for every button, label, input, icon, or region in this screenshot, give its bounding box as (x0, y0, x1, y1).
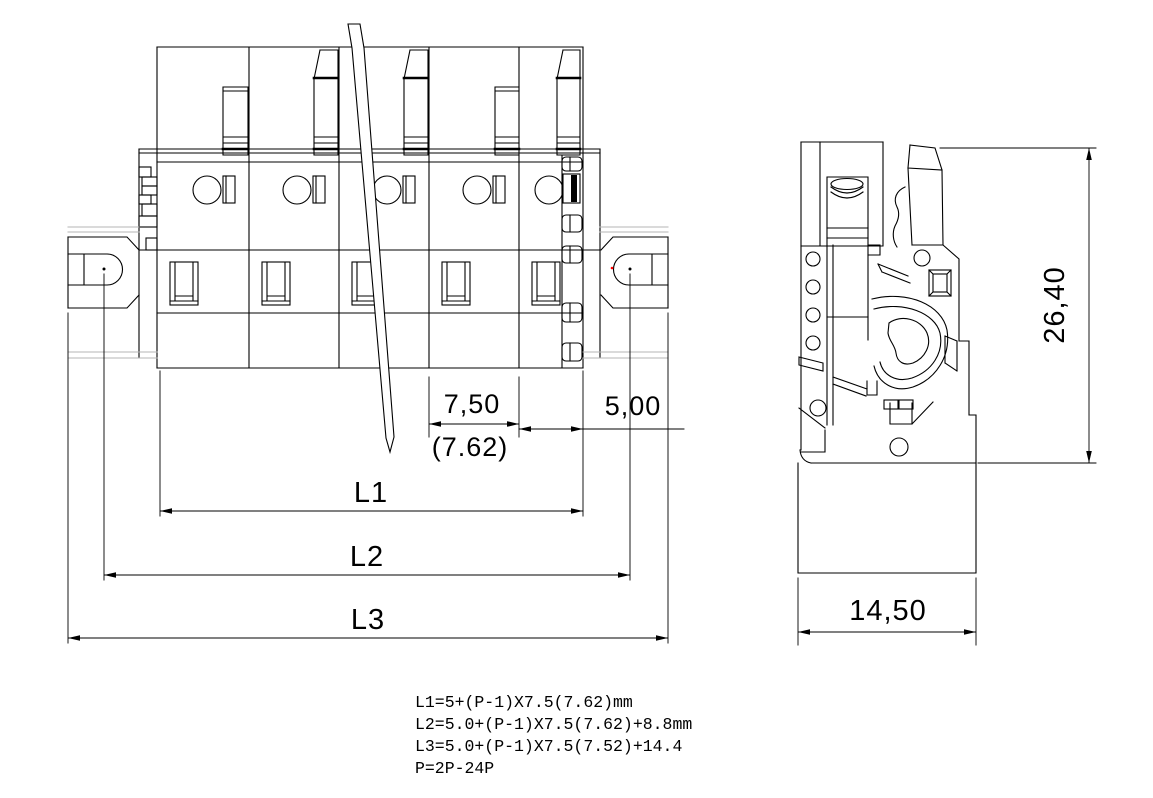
side-outline (798, 142, 976, 573)
mounting-flange-left (68, 227, 157, 358)
latch-pole-5 (557, 50, 580, 155)
dim-side-width-label: 14,50 (849, 595, 927, 627)
note-line-1: L1=5+(P-1)X7.5(7.62)mm (415, 693, 633, 712)
dim-pitch-alt-label: (7.62) (432, 432, 509, 462)
side-features (799, 250, 957, 456)
drawing-canvas: 7,50 (7.62) 5,00 L1 L2 L3 (0, 0, 1153, 798)
latch-pole-1 (223, 87, 248, 155)
dim-l1-label: L1 (354, 477, 388, 509)
latch-pole-4 (495, 87, 519, 155)
notes-block: L1=5+(P-1)X7.5(7.62)mm L2=5.0+(P-1)X7.5(… (415, 693, 692, 778)
note-line-4: P=2P-24P (415, 759, 494, 778)
release-lever (878, 145, 943, 283)
square-port (929, 270, 951, 296)
dim-side-height-label: 26,40 (1039, 266, 1071, 344)
end-bracket-dark-bar (571, 175, 577, 202)
flange-slot-left (107, 254, 122, 285)
flange-hole-center-left (103, 268, 106, 271)
red-artifact-dot (611, 267, 614, 270)
clamp-spring (872, 296, 948, 388)
screw-holes (193, 174, 580, 204)
flange-hole-center-right (629, 268, 632, 271)
side-view (798, 142, 976, 573)
note-line-3: L3=5.0+(P-1)X7.5(7.52)+14.4 (415, 737, 682, 756)
latch-pole-3 (404, 50, 428, 155)
left-serration (139, 167, 157, 250)
flange-slot-right (613, 254, 629, 285)
dim-l3-label: L3 (351, 604, 385, 636)
side-dimensions: 26,40 14,50 (798, 148, 1096, 645)
screw-head-top (831, 179, 863, 190)
latch-pole-2 (314, 50, 338, 155)
mounting-flange-right (583, 227, 668, 358)
insertion-tool (348, 24, 394, 452)
plug-openings (170, 262, 560, 305)
dim-end-width-label: 5,00 (605, 391, 662, 421)
dim-pitch-label: 7,50 (444, 389, 501, 419)
note-line-2: L2=5.0+(P-1)X7.5(7.62)+8.8mm (415, 715, 692, 734)
dim-l2-label: L2 (350, 541, 384, 573)
screw-channel (827, 177, 880, 425)
front-view (68, 24, 668, 452)
technical-drawing: 7,50 (7.62) 5,00 L1 L2 L3 (0, 0, 1153, 798)
